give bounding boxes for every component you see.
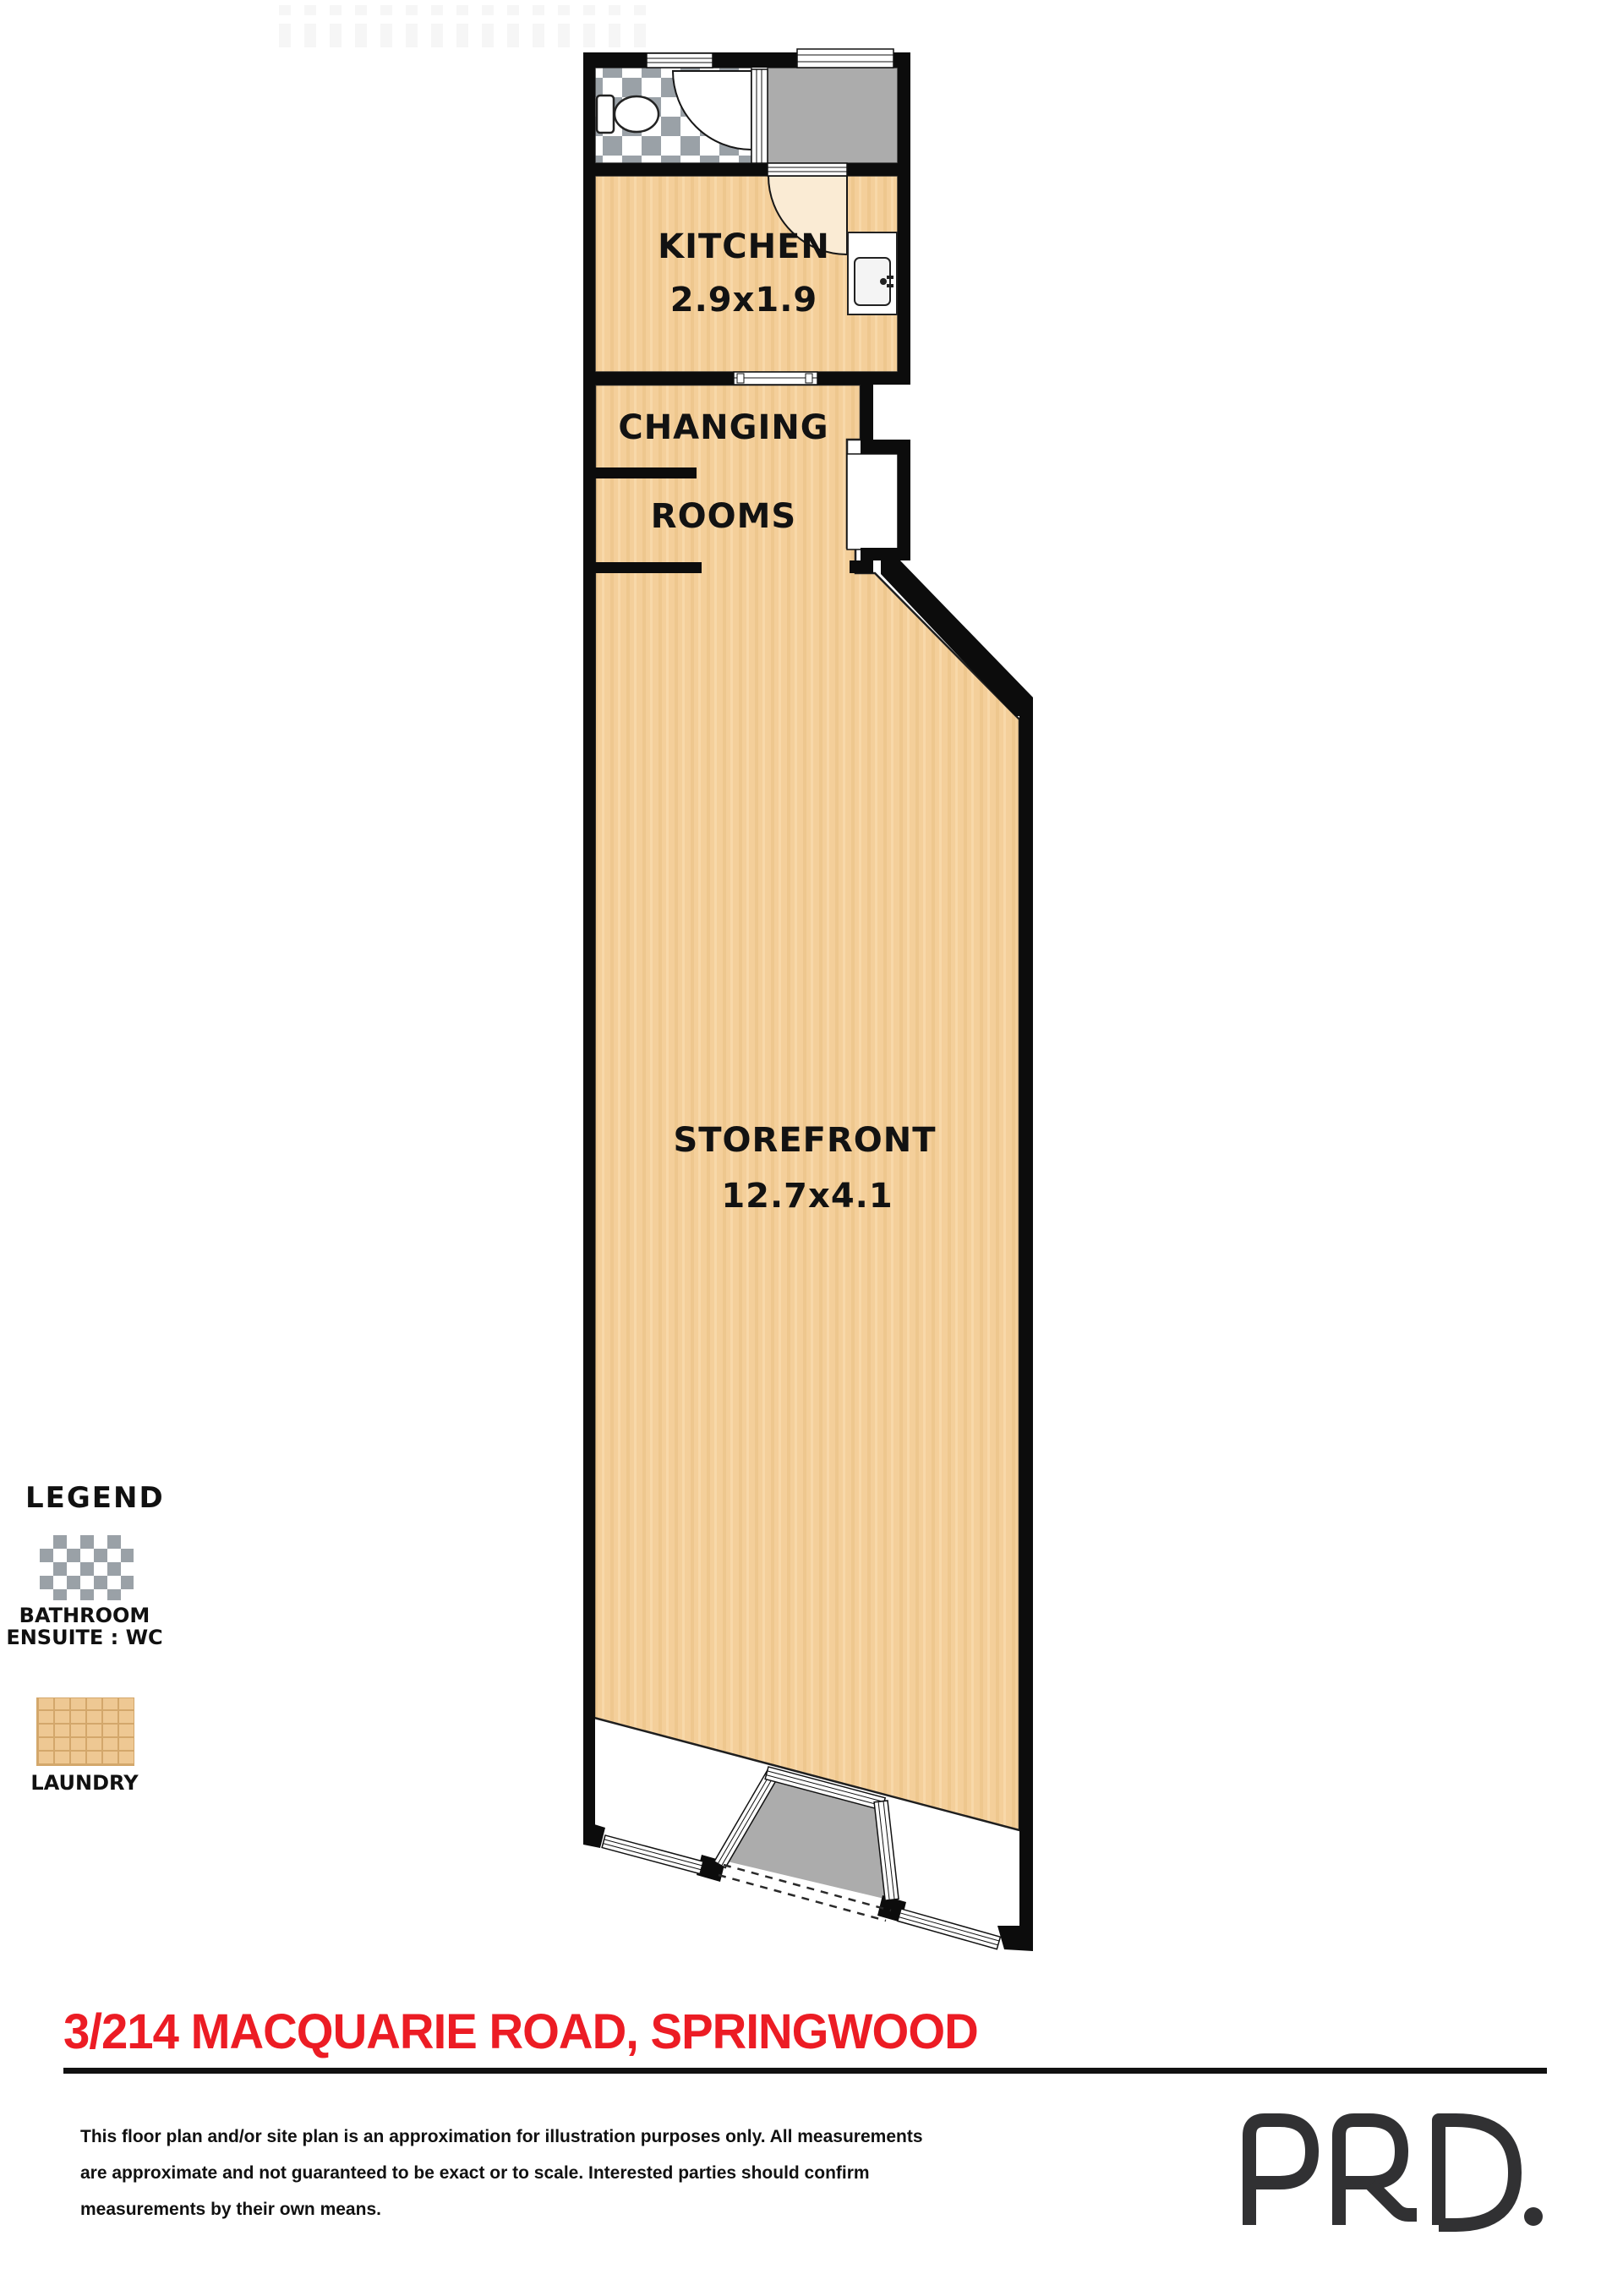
gray-room-doorway-band (768, 163, 847, 176)
kitchen-label: KITCHEN (658, 230, 830, 264)
wall-changing-stub-2 (595, 562, 702, 573)
kitchen-servery-window (734, 372, 817, 385)
wall-niche-right (898, 440, 910, 560)
disclaimer-line-3: measurements by their own means. (80, 2191, 923, 2228)
wall-niche-stub (850, 560, 873, 573)
property-address: 3/214 MACQUARIE ROAD, SPRINGWOOD (63, 2004, 978, 2060)
gray-room-window (797, 49, 893, 68)
legend-ensuite-label: ENSUITE : WC (6, 1626, 162, 1648)
toilet-bowl-icon (615, 96, 658, 132)
wall-bathroom-bottom-right (847, 163, 910, 176)
logo-period (1524, 2207, 1543, 2226)
disclaimer-line-2: are approximate and not guaranteed to be… (80, 2155, 923, 2191)
logo-letter-r-leg (1371, 2184, 1417, 2215)
logo-letter-p (1249, 2120, 1312, 2225)
disclaimer-text: This floor plan and/or site plan is an a… (80, 2118, 923, 2228)
bathroom-partition-window (751, 69, 768, 163)
wall-left-foot (583, 1821, 605, 1848)
wall-niche-upper (861, 385, 873, 440)
bathroom-window (647, 53, 713, 68)
legend-laundry-label: LAUNDRY (30, 1772, 138, 1794)
tan-tile-swatch (36, 1697, 134, 1766)
wall-bathroom-bottom-left (583, 163, 768, 176)
wall-right-upper (898, 52, 910, 385)
legend-title: LEGEND (25, 1481, 165, 1515)
storefront-floor (594, 385, 1019, 1830)
wall-left (583, 52, 595, 1829)
sink-tap-handle (887, 276, 893, 279)
legend-bathroom-label: BATHROOM (19, 1604, 150, 1626)
changing-rooms-label-line1: CHANGING (618, 411, 828, 445)
wall-right-lower (1019, 697, 1033, 1944)
floor-plan-page: KITCHEN 2.9x1.9 CHANGING ROOMS STOREFRON… (0, 0, 1623, 2296)
shopfront-window-left (602, 1835, 703, 1874)
wall-niche (847, 454, 898, 549)
sink-tap-icon (880, 278, 887, 285)
changing-rooms-label-line2: ROOMS (651, 500, 796, 533)
sink-tap-handle (887, 284, 893, 287)
shopfront-window-right (898, 1909, 1000, 1949)
kitchen-dimensions: 2.9x1.9 (670, 283, 818, 317)
footer-divider (63, 2068, 1547, 2074)
gray-room-floor (768, 68, 898, 163)
wall-changing-stub-1 (595, 467, 697, 478)
disclaimer-line-1: This floor plan and/or site plan is an a… (80, 2118, 923, 2155)
logo-letter-d (1439, 2120, 1515, 2225)
floors (594, 68, 1019, 1902)
storefront-label: STOREFRONT (673, 1123, 936, 1157)
storefront-dimensions: 12.7x4.1 (721, 1179, 893, 1213)
checkered-tile-swatch (40, 1535, 134, 1600)
wall-corner-bottom-right (997, 1926, 1033, 1951)
wall-kitchen-bottom-left (583, 372, 734, 385)
toilet-cistern-icon (597, 96, 614, 133)
wall-kitchen-bottom-right (817, 372, 910, 385)
prd-logo (1249, 2120, 1543, 2226)
